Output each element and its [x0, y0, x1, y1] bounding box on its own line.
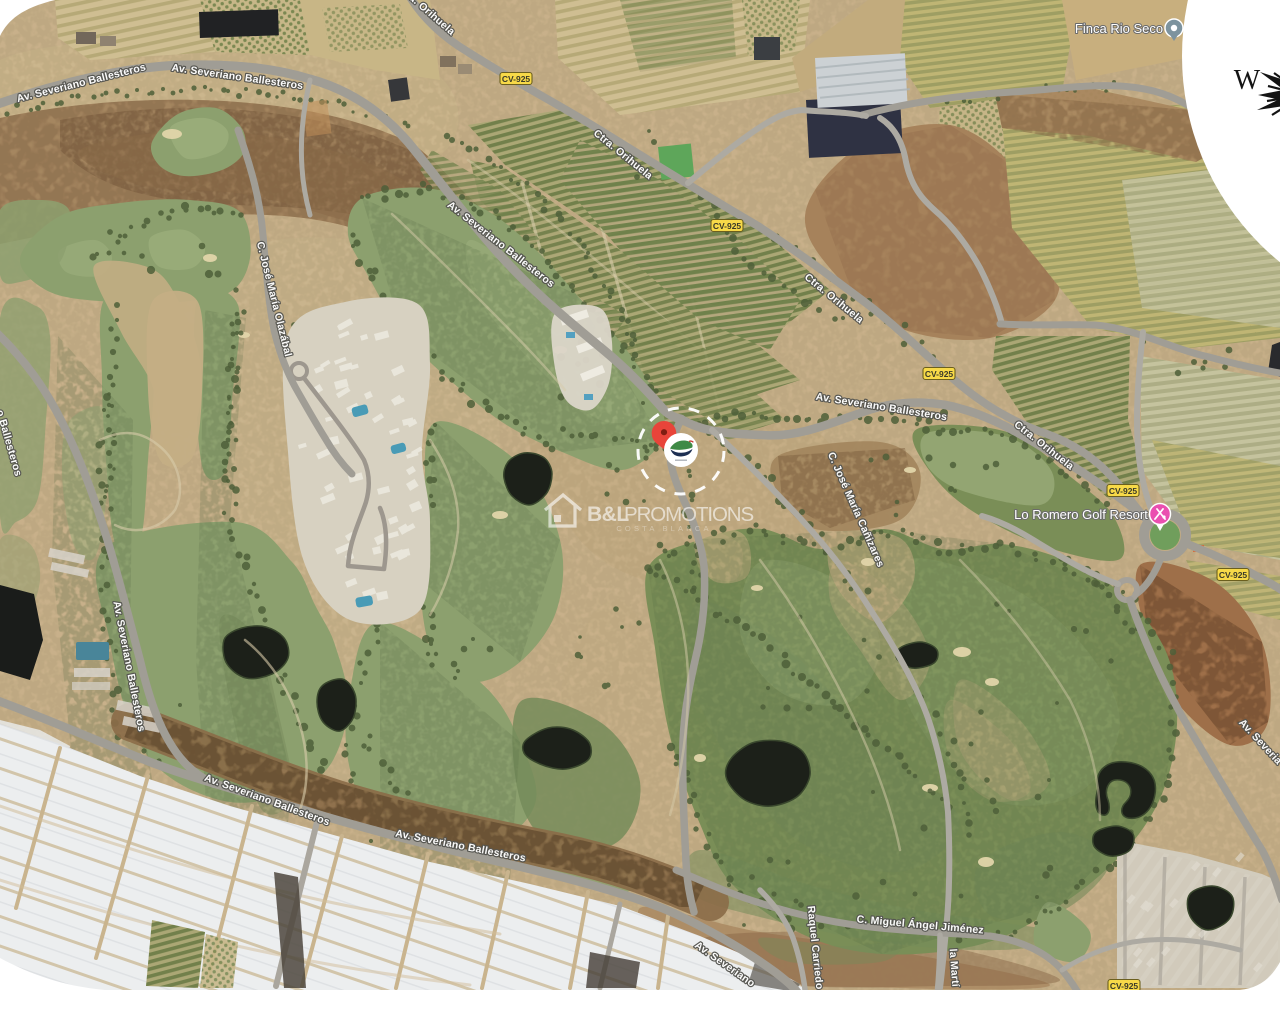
svg-text:CV-925: CV-925 [713, 221, 742, 231]
svg-text:W: W [1234, 65, 1261, 96]
svg-text:CV-925: CV-925 [502, 74, 531, 84]
svg-text:PROMOTIONS: PROMOTIONS [624, 503, 754, 526]
svg-text:B&L: B&L [587, 503, 629, 526]
svg-text:COSTA BLANCA: COSTA BLANCA [616, 524, 711, 533]
svg-text:Lo Romero Golf Resort: Lo Romero Golf Resort [1014, 507, 1148, 522]
svg-text:Finca Rio Seco: Finca Rio Seco [1075, 21, 1163, 36]
svg-text:CV-925: CV-925 [1109, 486, 1138, 496]
svg-text:CV-925: CV-925 [925, 369, 954, 379]
svg-text:CV-925: CV-925 [1219, 570, 1248, 580]
svg-text:CV-925: CV-925 [1110, 981, 1139, 991]
